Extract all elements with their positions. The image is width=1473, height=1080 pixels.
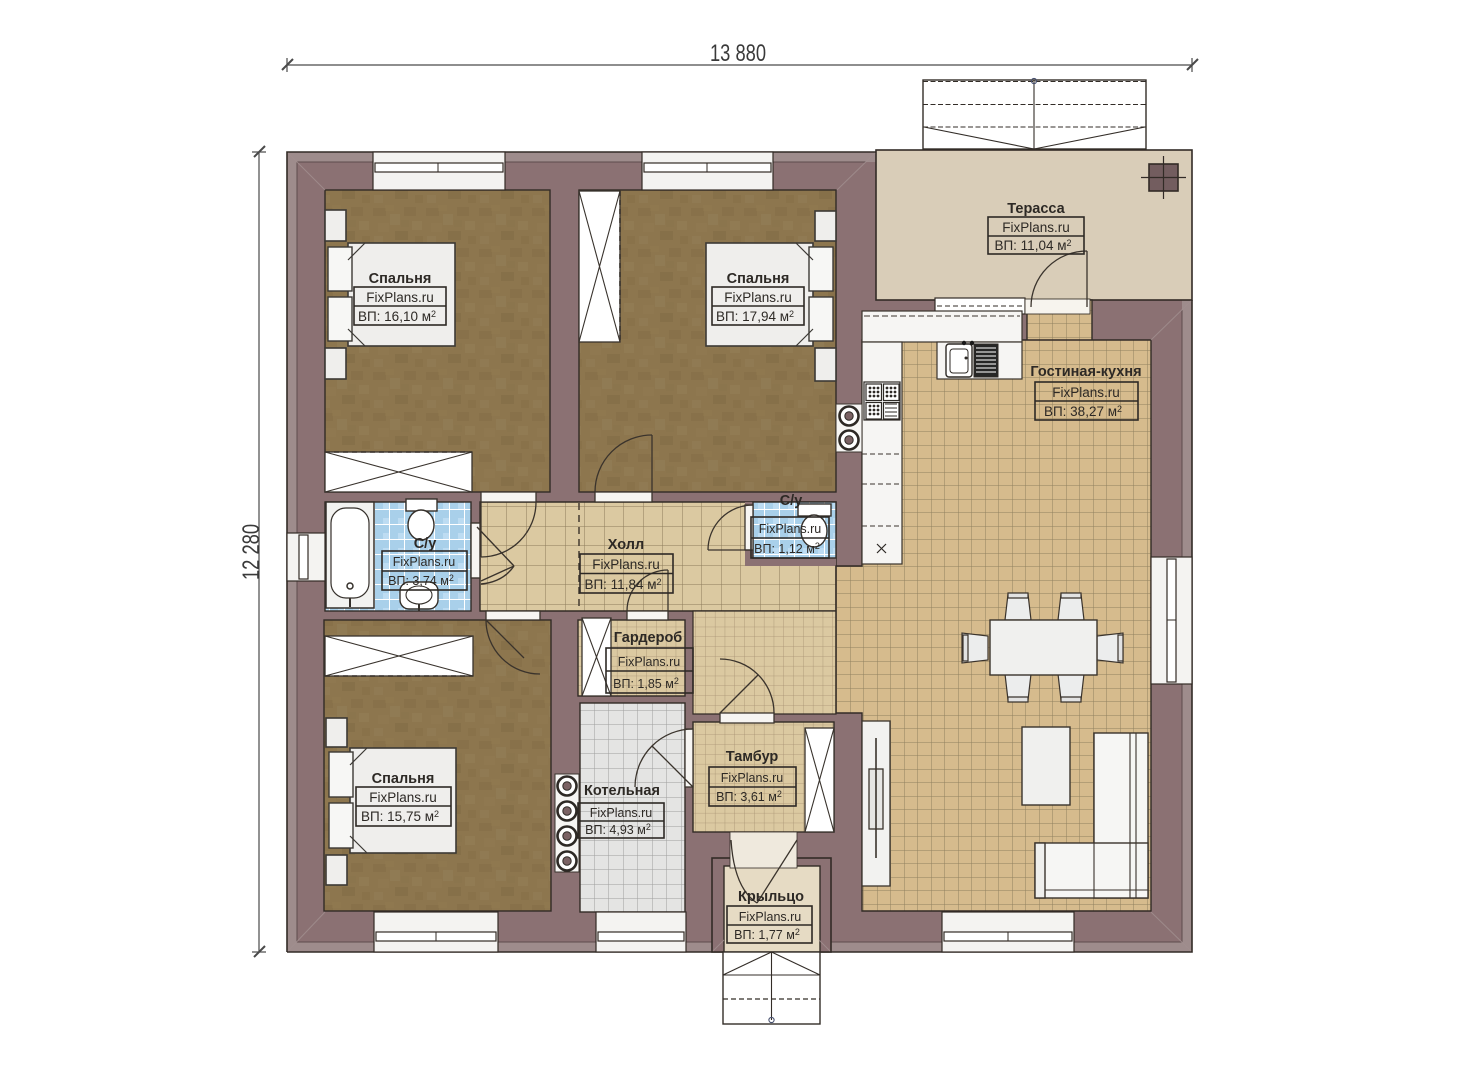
svg-text:ВП: 11,84 м2: ВП: 11,84 м2 — [584, 577, 661, 592]
svg-text:FixPlans.ru: FixPlans.ru — [592, 557, 660, 572]
svg-text:Спальня: Спальня — [369, 271, 432, 287]
svg-text:Тамбур: Тамбур — [726, 749, 779, 765]
svg-text:FixPlans.ru: FixPlans.ru — [369, 790, 437, 805]
svg-text:FixPlans.ru: FixPlans.ru — [739, 910, 802, 924]
svg-text:ВП: 3,61 м2: ВП: 3,61 м2 — [716, 789, 782, 804]
svg-text:FixPlans.ru: FixPlans.ru — [724, 290, 792, 305]
svg-text:С/у: С/у — [780, 493, 803, 509]
svg-text:ВП: 1,85 м2: ВП: 1,85 м2 — [613, 676, 679, 691]
svg-text:Гардероб: Гардероб — [614, 630, 683, 646]
svg-text:12 280: 12 280 — [238, 524, 265, 580]
svg-text:ВП: 16,10 м2: ВП: 16,10 м2 — [358, 309, 436, 324]
svg-text:Холл: Холл — [608, 537, 644, 553]
svg-text:С/у: С/у — [414, 536, 437, 552]
svg-text:FixPlans.ru: FixPlans.ru — [590, 806, 653, 820]
svg-text:FixPlans.ru: FixPlans.ru — [759, 522, 822, 536]
svg-text:13 880: 13 880 — [710, 40, 766, 67]
svg-text:FixPlans.ru: FixPlans.ru — [1052, 385, 1120, 400]
svg-text:FixPlans.ru: FixPlans.ru — [393, 555, 456, 569]
svg-text:FixPlans.ru: FixPlans.ru — [618, 655, 681, 669]
svg-text:FixPlans.ru: FixPlans.ru — [721, 771, 784, 785]
svg-text:FixPlans.ru: FixPlans.ru — [366, 290, 434, 305]
svg-text:ВП: 15,75 м2: ВП: 15,75 м2 — [361, 809, 439, 824]
svg-text:ВП: 4,93 м2: ВП: 4,93 м2 — [585, 822, 651, 837]
svg-text:ВП: 1,12 м2: ВП: 1,12 м2 — [754, 541, 820, 556]
svg-text:Крыльцо: Крыльцо — [738, 889, 804, 905]
svg-text:ВП: 17,94 м2: ВП: 17,94 м2 — [716, 309, 794, 324]
svg-text:ВП: 11,04 м2: ВП: 11,04 м2 — [994, 238, 1071, 253]
svg-text:Гостиная-кухня: Гостиная-кухня — [1030, 364, 1141, 380]
svg-text:FixPlans.ru: FixPlans.ru — [1002, 220, 1070, 235]
svg-text:Терасса: Терасса — [1007, 201, 1065, 217]
svg-text:Котельная: Котельная — [584, 783, 660, 799]
svg-text:ВП: 1,77 м2: ВП: 1,77 м2 — [734, 927, 800, 942]
svg-text:ВП: 38,27 м2: ВП: 38,27 м2 — [1044, 404, 1122, 419]
svg-text:Спальня: Спальня — [372, 771, 435, 787]
svg-text:ВП: 3,74 м2: ВП: 3,74 м2 — [388, 573, 454, 588]
svg-text:Спальня: Спальня — [727, 271, 790, 287]
